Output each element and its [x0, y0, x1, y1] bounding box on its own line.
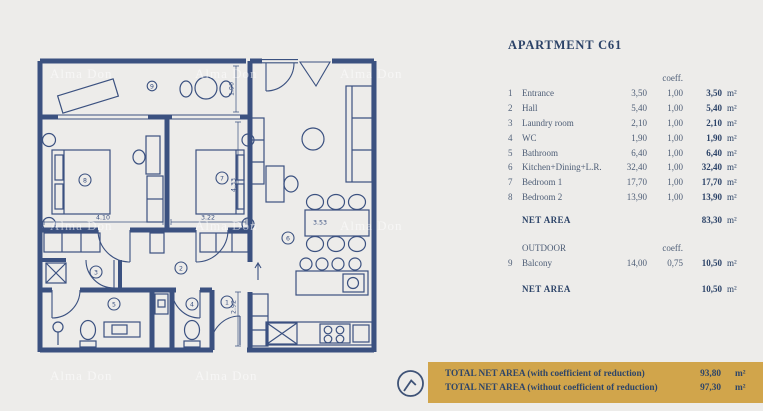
room-label-hall: 2: [179, 265, 183, 272]
room-label-entrance: 1: [225, 299, 229, 306]
compass-icon: [394, 367, 427, 400]
table-row: 6 Kitchen+Dining+L.R. 32,40 1,00 32,40 m…: [508, 160, 754, 175]
table-row: 7 Bedroom 1 17,70 1,00 17,70 m²: [508, 175, 754, 190]
room-label-bedroom2: 8: [83, 177, 87, 184]
table-row: 1 Entrance 3,50 1,00 3,50 m²: [508, 86, 754, 101]
table-header-row: coeff.: [508, 71, 754, 86]
table-row: 8 Bedroom 2 13,90 1,00 13,90 m²: [508, 190, 754, 205]
net-area-row: NET AREA 83,30 m²: [508, 213, 754, 228]
outdoor-header-row: OUTDOOR coeff.: [508, 241, 754, 256]
bathroom-fixtures: [53, 294, 200, 347]
dim-bedroom2-width: 4.10: [96, 215, 110, 222]
outdoor-coeff-header: coeff.: [647, 241, 683, 256]
dim-bedroom1-depth: 4.33: [231, 178, 238, 192]
floor-plan-drawing: 1.90 4.10 3.22 4.33 3.53 2.92 9 8 7 6 2 …: [0, 0, 430, 411]
total-area-banner: TOTAL NET AREA (with coefficient of redu…: [428, 362, 763, 403]
floorplan-page: 1.90 4.10 3.22 4.33 3.53 2.92 9 8 7 6 2 …: [0, 0, 763, 411]
outdoor-net-area-row: NET AREA 10,50 m²: [508, 282, 754, 297]
total-without-coeff-row: TOTAL NET AREA (without coefficient of r…: [428, 382, 763, 396]
page-title: APARTMENT C61: [508, 38, 622, 53]
living-kitchen-furniture: [251, 86, 372, 346]
hall-closets: [44, 233, 248, 283]
table-row: 2 Hall 5,40 1,00 5,40 m²: [508, 101, 754, 116]
dim-bedroom1-width: 3.22: [201, 215, 215, 222]
dim-entrance-depth: 2.92: [231, 300, 238, 314]
room-label-wc: 4: [190, 301, 194, 308]
table-row: 3 Laundry room 2,10 1,00 2,10 m²: [508, 116, 754, 131]
coeff-column-header: coeff.: [647, 71, 683, 86]
balcony-furniture: [58, 77, 232, 113]
dim-dining-width: 3.53: [313, 220, 327, 227]
table-row: 4 WC 1,90 1,00 1,90 m²: [508, 131, 754, 146]
room-label-laundry: 3: [94, 269, 98, 276]
room-label-bathroom: 5: [112, 301, 116, 308]
dim-balcony-depth: 1.90: [229, 82, 236, 96]
total-with-coeff-row: TOTAL NET AREA (with coefficient of redu…: [428, 368, 763, 382]
windows: [58, 60, 298, 119]
area-table: coeff. 1 Entrance 3,50 1,00 3,50 m² 2 Ha…: [508, 71, 754, 297]
table-row: 9 Balcony 14,00 0,75 10,50 m²: [508, 256, 754, 271]
room-label-kitchen: 6: [286, 235, 290, 242]
table-row: 5 Bathroom 6,40 1,00 6,40 m²: [508, 146, 754, 161]
room-label-bedroom1: 7: [220, 175, 224, 182]
room-label-balcony: 9: [150, 83, 154, 90]
